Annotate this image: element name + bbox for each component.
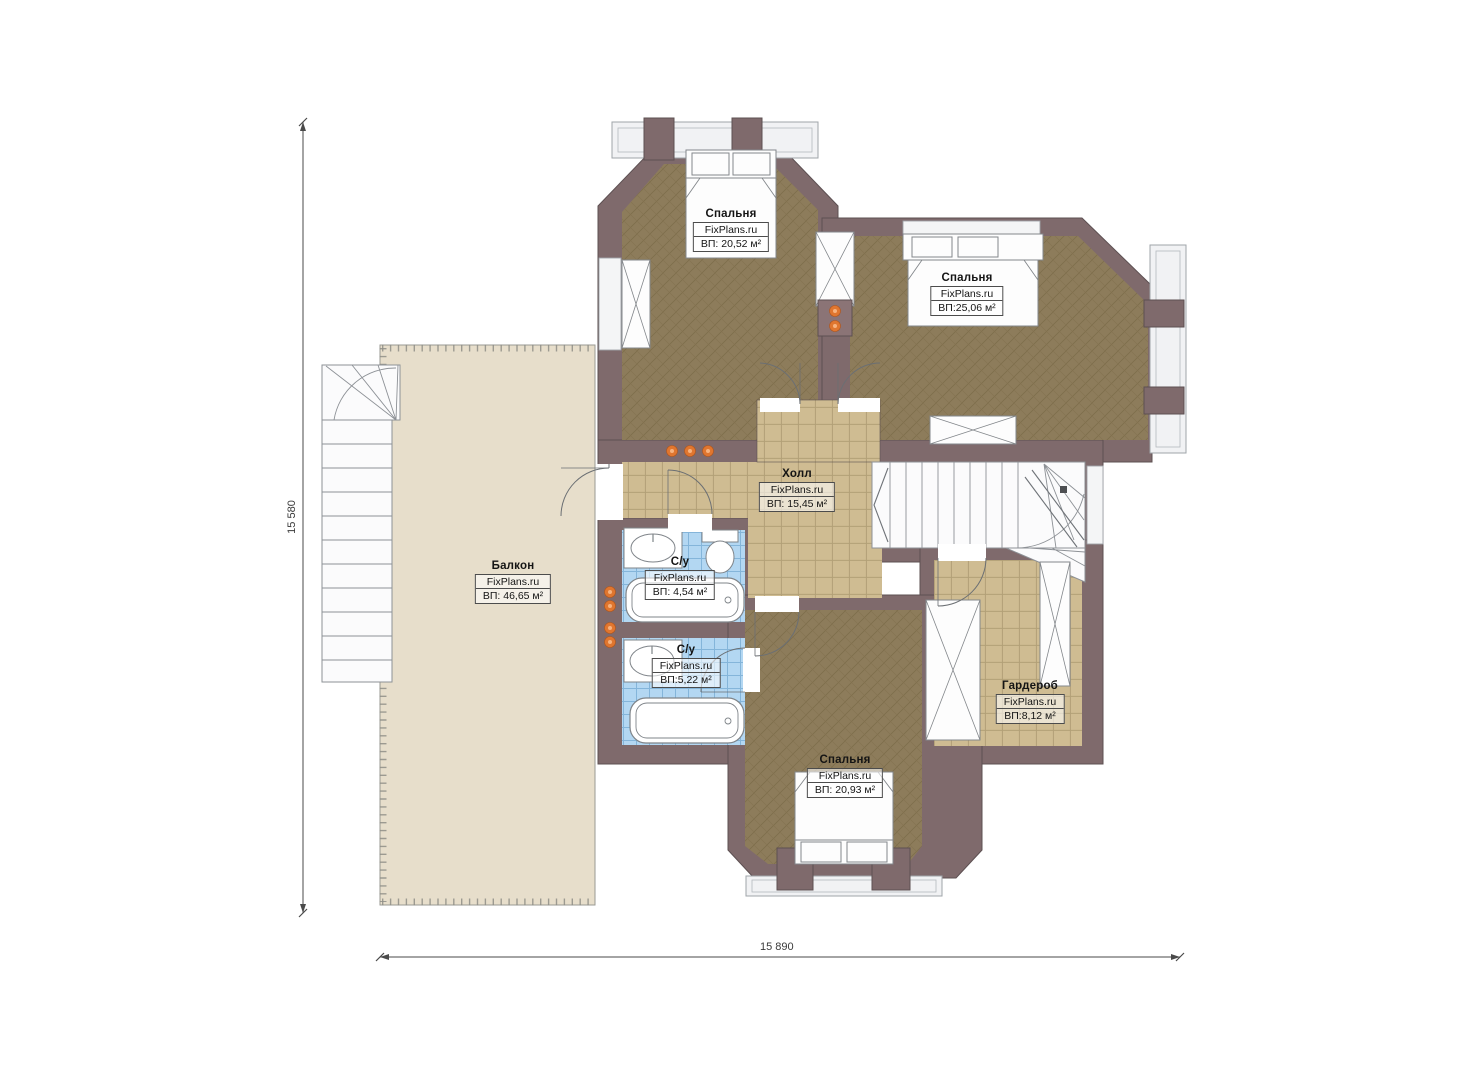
room-name: Балкон bbox=[475, 560, 551, 572]
watermark-text: FixPlans.ru bbox=[808, 769, 882, 783]
horizontal-dimension-line bbox=[376, 953, 1184, 961]
room-name: Спальня bbox=[807, 754, 883, 766]
closet-top-left bbox=[622, 260, 650, 348]
watermark-text: FixPlans.ru bbox=[694, 223, 768, 237]
label-bath-upper: С/у FixPlans.ru ВП: 4,54 м² bbox=[645, 556, 715, 600]
room-info-box: FixPlans.ru ВП: 4,54 м² bbox=[645, 570, 715, 600]
room-area-text: ВП: 20,93 м² bbox=[808, 783, 882, 797]
room-name: Спальня bbox=[693, 208, 769, 220]
label-bedroom-bottom: Спальня FixPlans.ru ВП: 20,93 м² bbox=[807, 754, 883, 798]
closet-between-bedrooms bbox=[816, 232, 854, 306]
room-info-box: FixPlans.ru ВП: 20,52 м² bbox=[693, 222, 769, 252]
right-bay-window bbox=[1144, 245, 1186, 453]
room-info-box: FixPlans.ru ВП:5,22 м² bbox=[652, 658, 721, 688]
room-name: Спальня bbox=[930, 272, 1003, 284]
closet-wardrobe bbox=[1040, 562, 1070, 686]
room-info-box: FixPlans.ru ВП: 46,65 м² bbox=[475, 574, 551, 604]
room-area-text: ВП: 15,45 м² bbox=[760, 497, 834, 511]
vertical-dimension-label: 15 580 bbox=[286, 497, 298, 537]
watermark-text: FixPlans.ru bbox=[997, 695, 1064, 709]
room-area-text: ВП: 46,65 м² bbox=[476, 589, 550, 603]
room-area-text: ВП: 20,52 м² bbox=[694, 237, 768, 251]
window-bedroom-right-top bbox=[903, 221, 1040, 234]
floor-plan-drawing bbox=[0, 0, 1474, 1080]
window-stair-landing bbox=[1087, 466, 1103, 544]
floor-plan-page: Спальня FixPlans.ru ВП: 20,52 м² Спальня… bbox=[0, 0, 1474, 1080]
label-bedroom-right: Спальня FixPlans.ru ВП:25,06 м² bbox=[930, 272, 1003, 316]
room-info-box: FixPlans.ru ВП:8,12 м² bbox=[996, 694, 1065, 724]
room-name: С/у bbox=[652, 644, 721, 656]
room-name: Холл bbox=[759, 468, 835, 480]
closet-bedroom-bottom bbox=[926, 600, 980, 740]
window-left-wall bbox=[599, 258, 621, 350]
room-info-box: FixPlans.ru ВП:25,06 м² bbox=[930, 286, 1003, 316]
room-area-text: ВП:25,06 м² bbox=[931, 301, 1002, 315]
watermark-text: FixPlans.ru bbox=[931, 287, 1002, 301]
watermark-text: FixPlans.ru bbox=[653, 659, 720, 673]
room-name: С/у bbox=[645, 556, 715, 568]
room-area-text: ВП: 4,54 м² bbox=[646, 585, 714, 599]
hall-corridor-floor bbox=[748, 548, 882, 598]
balcony-area bbox=[380, 345, 595, 905]
room-info-box: FixPlans.ru ВП: 15,45 м² bbox=[759, 482, 835, 512]
horizontal-dimension-label: 15 890 bbox=[757, 941, 797, 953]
watermark-text: FixPlans.ru bbox=[476, 575, 550, 589]
label-wardrobe: Гардероб FixPlans.ru ВП:8,12 м² bbox=[996, 680, 1065, 724]
label-bedroom-top: Спальня FixPlans.ru ВП: 20,52 м² bbox=[693, 208, 769, 252]
dresser-right-bedroom bbox=[930, 416, 1016, 444]
external-staircase bbox=[322, 365, 400, 682]
label-bath-lower: С/у FixPlans.ru ВП:5,22 м² bbox=[652, 644, 721, 688]
vertical-dimension-line bbox=[299, 118, 307, 917]
room-area-text: ВП:8,12 м² bbox=[997, 709, 1064, 723]
room-info-box: FixPlans.ru ВП: 20,93 м² bbox=[807, 768, 883, 798]
label-hall: Холл FixPlans.ru ВП: 15,45 м² bbox=[759, 468, 835, 512]
room-area-text: ВП:5,22 м² bbox=[653, 673, 720, 687]
watermark-text: FixPlans.ru bbox=[646, 571, 714, 585]
room-name: Гардероб bbox=[996, 680, 1065, 692]
watermark-text: FixPlans.ru bbox=[760, 483, 834, 497]
bathtub-lower bbox=[630, 698, 744, 743]
label-balcony: Балкон FixPlans.ru ВП: 46,65 м² bbox=[475, 560, 551, 604]
